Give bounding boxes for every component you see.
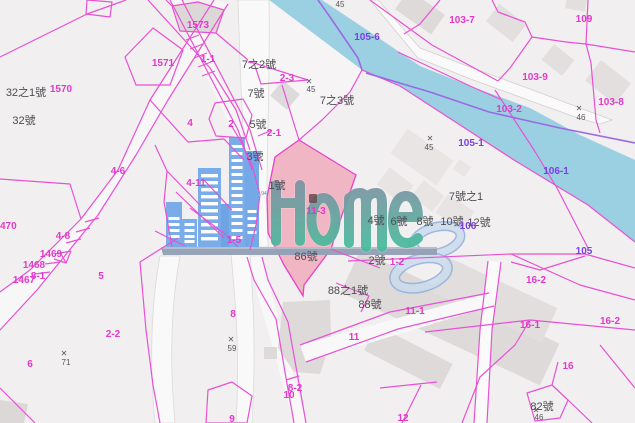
svg-text:103-9: 103-9 — [522, 72, 548, 83]
svg-text:9: 9 — [229, 414, 235, 423]
svg-text:4-8: 4-8 — [56, 231, 71, 242]
svg-text:71: 71 — [62, 358, 71, 367]
svg-text:88號: 88號 — [358, 298, 381, 311]
svg-text:86號: 86號 — [294, 250, 317, 263]
svg-text:5號: 5號 — [249, 118, 266, 131]
svg-text:4-6: 4-6 — [111, 166, 126, 177]
svg-text:6: 6 — [27, 359, 33, 370]
svg-text:1571: 1571 — [152, 58, 175, 69]
svg-text:✕: ✕ — [61, 349, 68, 358]
svg-text:2號: 2號 — [368, 254, 385, 267]
svg-text:16-2: 16-2 — [526, 275, 546, 286]
svg-text:32之1號: 32之1號 — [6, 85, 46, 99]
svg-text:45: 45 — [336, 0, 345, 9]
svg-text:5: 5 — [98, 271, 104, 282]
svg-text:7號: 7號 — [247, 87, 264, 100]
svg-text:105: 105 — [576, 246, 593, 257]
svg-text:7之3號: 7之3號 — [320, 93, 354, 107]
svg-text:1468: 1468 — [23, 260, 46, 271]
svg-text:105-1: 105-1 — [458, 138, 484, 149]
svg-text:94: 94 — [261, 191, 267, 197]
svg-text:4-11: 4-11 — [186, 178, 206, 189]
svg-text:1-1: 1-1 — [201, 54, 216, 65]
svg-text:8號: 8號 — [416, 215, 433, 228]
svg-text:16-2: 16-2 — [600, 316, 620, 327]
svg-text:46: 46 — [577, 113, 586, 122]
svg-text:11-1: 11-1 — [405, 306, 425, 317]
svg-text:2-1: 2-1 — [267, 128, 282, 139]
svg-text:2-3: 2-3 — [280, 73, 295, 84]
svg-text:✕: ✕ — [228, 335, 235, 344]
svg-text:45: 45 — [307, 85, 316, 94]
svg-text:11-3: 11-3 — [306, 206, 326, 217]
svg-text:8: 8 — [230, 309, 236, 320]
svg-text:2-2: 2-2 — [106, 329, 121, 340]
svg-text:470: 470 — [0, 221, 17, 232]
svg-text:1-5: 1-5 — [227, 235, 242, 246]
svg-text:7之2號: 7之2號 — [242, 57, 276, 71]
svg-text:106: 106 — [460, 221, 477, 232]
svg-text:12: 12 — [397, 413, 409, 423]
svg-text:32號: 32號 — [12, 114, 35, 127]
svg-text:45: 45 — [425, 143, 434, 152]
svg-text:105-6: 105-6 — [354, 32, 380, 43]
svg-text:16: 16 — [562, 361, 574, 372]
svg-text:88之1號: 88之1號 — [328, 283, 368, 297]
svg-text:16-1: 16-1 — [520, 320, 540, 331]
svg-text:1570: 1570 — [50, 84, 73, 95]
svg-text:2: 2 — [228, 119, 234, 130]
svg-text:1469: 1469 — [40, 249, 63, 260]
svg-text:59: 59 — [228, 344, 237, 353]
svg-text:103-8: 103-8 — [598, 97, 624, 108]
svg-text:109: 109 — [576, 14, 593, 25]
svg-text:3號: 3號 — [246, 150, 263, 163]
svg-text:1-2: 1-2 — [390, 257, 405, 268]
svg-text:✕: ✕ — [576, 104, 583, 113]
svg-text:7號之1: 7號之1 — [449, 189, 483, 203]
svg-text:4: 4 — [187, 118, 193, 129]
svg-text:1573: 1573 — [187, 20, 210, 31]
svg-text:106-1: 106-1 — [543, 166, 569, 177]
svg-text:103-7: 103-7 — [449, 15, 475, 26]
svg-text:10: 10 — [283, 390, 295, 401]
svg-text:1號: 1號 — [268, 179, 285, 192]
svg-text:4號: 4號 — [367, 214, 384, 227]
svg-text:1467: 1467 — [13, 275, 36, 286]
svg-text:6號: 6號 — [390, 215, 407, 228]
svg-text:✕: ✕ — [427, 134, 434, 143]
svg-text:103-2: 103-2 — [496, 104, 522, 115]
svg-text:11: 11 — [349, 332, 360, 343]
svg-text:46: 46 — [535, 413, 544, 422]
